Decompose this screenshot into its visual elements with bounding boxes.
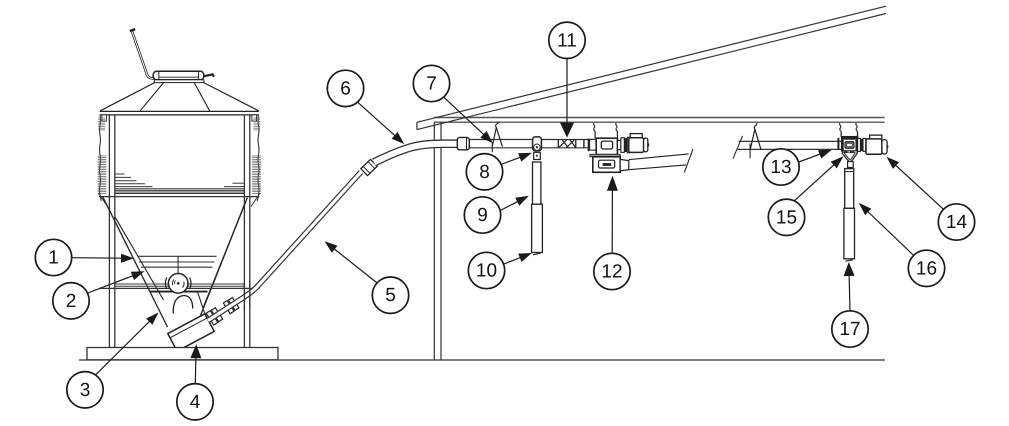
svg-text:1: 1 — [48, 248, 59, 269]
svg-text:2: 2 — [66, 291, 77, 312]
svg-text:4: 4 — [190, 392, 201, 413]
svg-text:13: 13 — [770, 157, 791, 178]
svg-text:11: 11 — [557, 30, 577, 51]
svg-text:7: 7 — [426, 74, 437, 95]
svg-text:15: 15 — [776, 207, 797, 228]
svg-text:5: 5 — [385, 285, 396, 306]
svg-text:3: 3 — [80, 380, 91, 401]
svg-text:6: 6 — [340, 78, 351, 99]
svg-text:14: 14 — [946, 212, 968, 233]
svg-text:9: 9 — [477, 205, 488, 226]
svg-text:16: 16 — [916, 258, 937, 279]
svg-text:8: 8 — [479, 162, 490, 183]
svg-text:12: 12 — [601, 262, 622, 283]
svg-text:17: 17 — [839, 319, 860, 340]
svg-text:10: 10 — [476, 261, 497, 282]
